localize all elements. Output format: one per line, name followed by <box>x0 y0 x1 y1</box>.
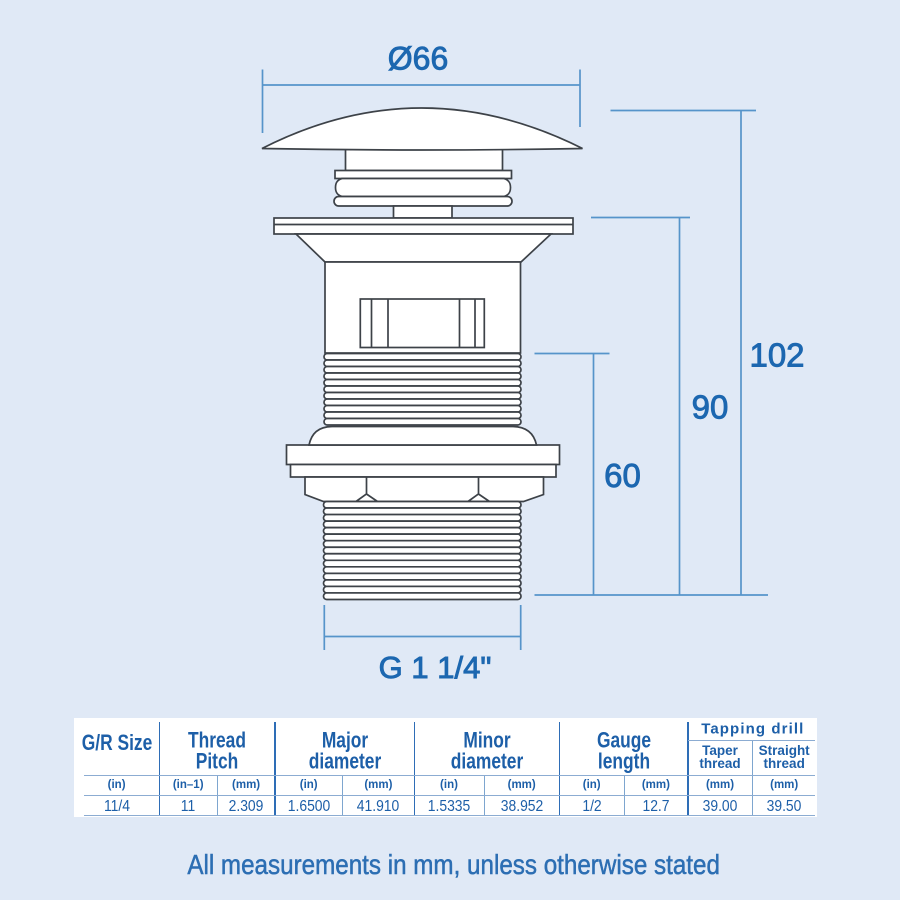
svg-text:90: 90 <box>692 389 729 426</box>
svg-text:G 1 1/4": G 1 1/4" <box>379 650 492 685</box>
svg-text:60: 60 <box>604 457 641 494</box>
svg-text:Ø66: Ø66 <box>388 41 448 77</box>
svg-text:102: 102 <box>749 337 804 374</box>
